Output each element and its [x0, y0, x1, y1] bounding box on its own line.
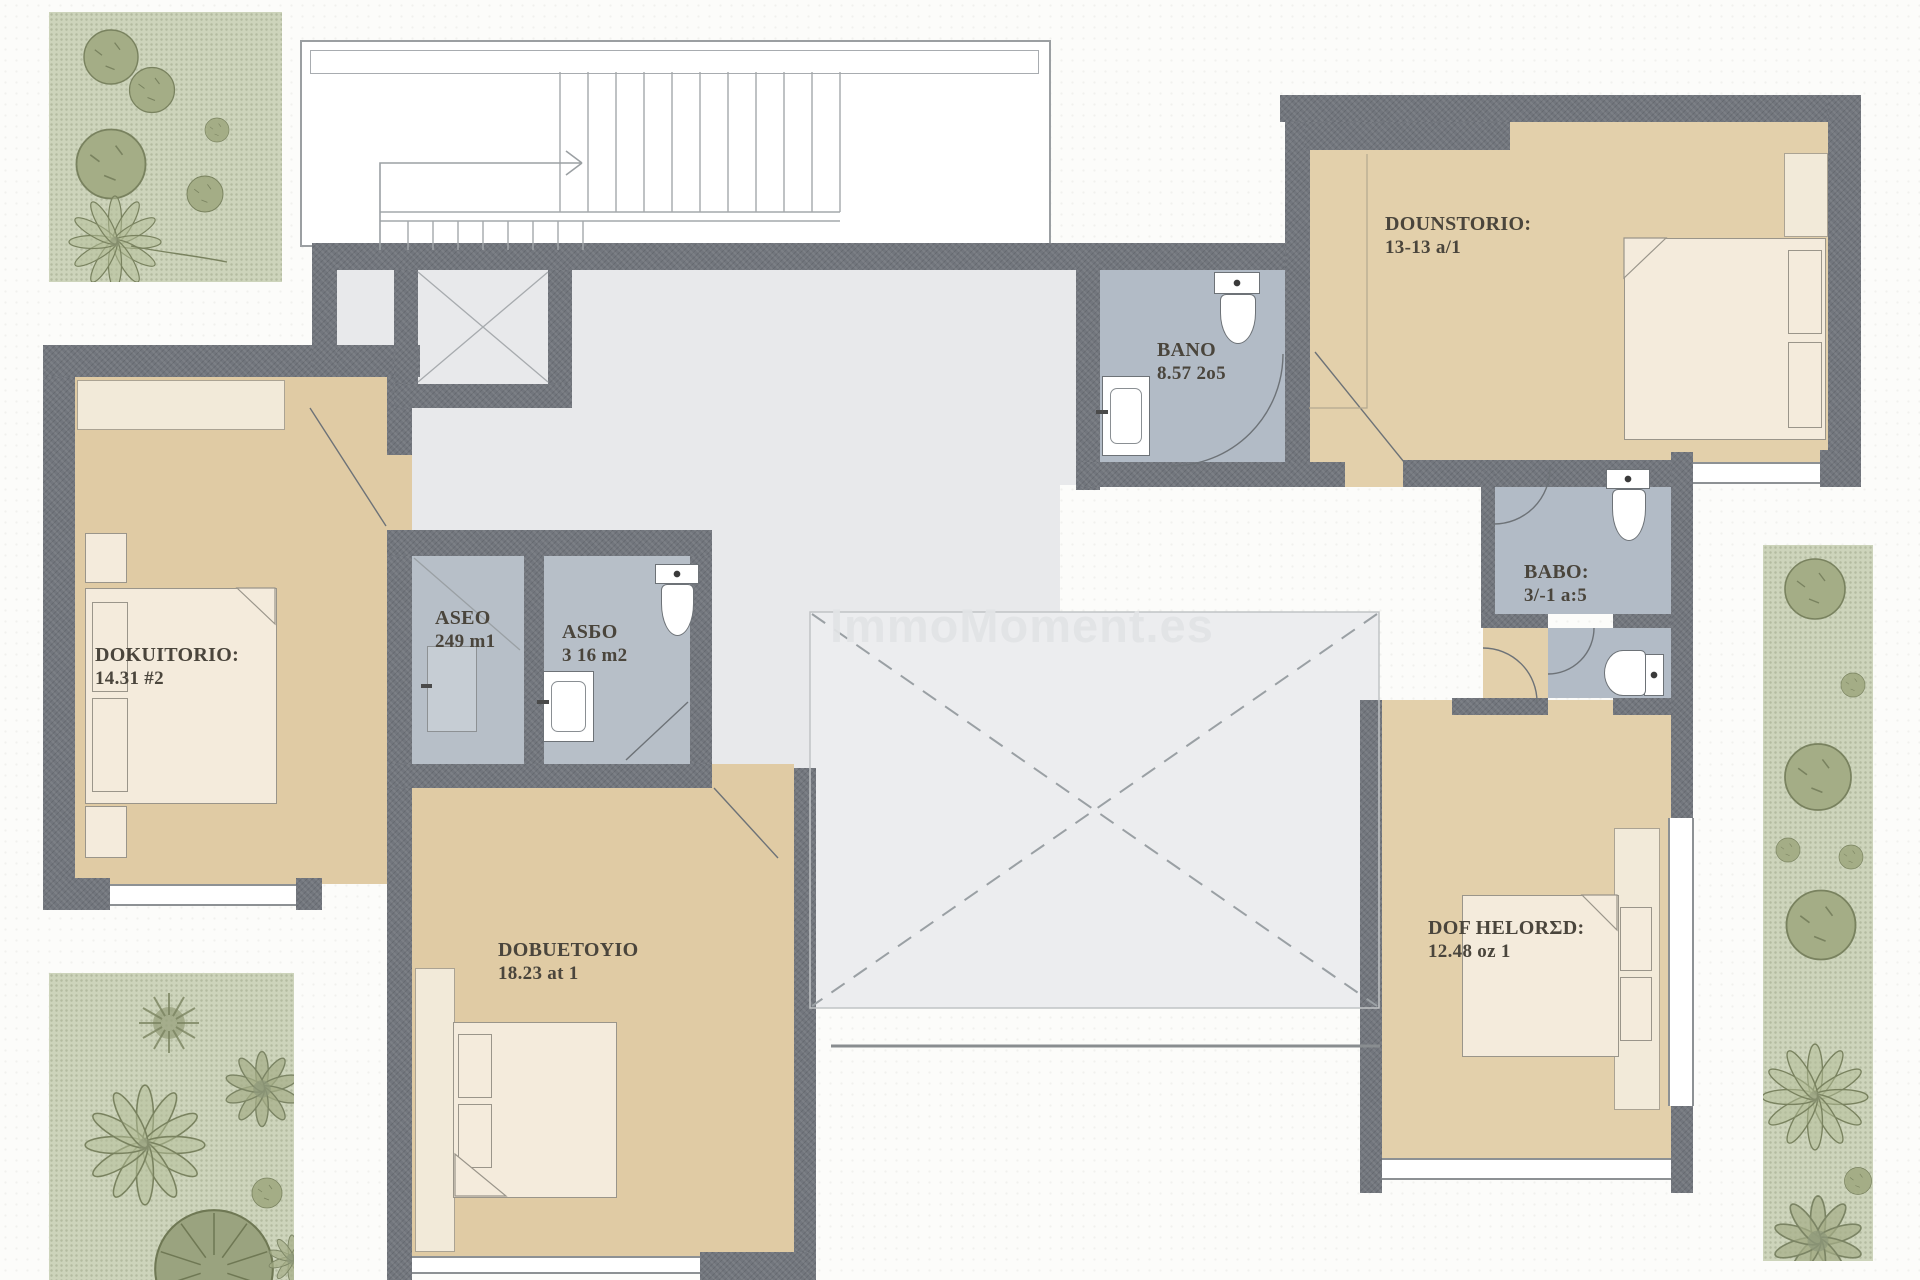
- room-name: BANO: [1157, 338, 1226, 362]
- pillow: [458, 1104, 492, 1168]
- room-label-dobuetoyio: DOBUETOYIO 18.23 at 1: [498, 938, 638, 986]
- hallway-floor: [337, 270, 1076, 485]
- room-label-dof-helored: DOF HELORΣD: 12.48 oz 1: [1428, 916, 1585, 964]
- window: [1382, 1158, 1671, 1180]
- room-label-dounstorio: DOUNSTORIO: 13-13 a/1: [1385, 212, 1531, 260]
- room-area: 3 16 m2: [562, 644, 627, 667]
- toilet-icon: [1644, 654, 1664, 696]
- wardrobe: [77, 380, 285, 430]
- doorway: [1483, 628, 1548, 700]
- doorway: [387, 455, 412, 530]
- pillow: [1620, 907, 1652, 971]
- toilet-icon: [655, 564, 699, 584]
- elevator-wall: [394, 270, 418, 384]
- shower-tray-icon: [427, 646, 477, 732]
- faucet-icon: [421, 684, 432, 688]
- nightstand: [85, 806, 127, 858]
- elevator-wall: [548, 270, 572, 384]
- wall: [1452, 698, 1548, 715]
- toilet-icon: [1606, 469, 1650, 489]
- wall: [387, 764, 712, 788]
- toilet-icon: [1604, 650, 1646, 696]
- sink-icon: [551, 681, 586, 732]
- wall: [1613, 698, 1671, 715]
- room-name: ASБO: [562, 620, 627, 644]
- garden-top-left: [49, 12, 282, 282]
- hallway-floor: [700, 612, 810, 788]
- floor-plan: DOUNSTORIO: 13-13 a/1 BANO 8.57 2o5 BABO…: [0, 0, 1920, 1280]
- wall: [1828, 95, 1861, 468]
- wall: [1360, 700, 1382, 1193]
- room-name: BABO:: [1524, 560, 1589, 584]
- room-name: DOBUETOYIO: [498, 938, 638, 962]
- doorway: [1345, 462, 1403, 487]
- wall: [1820, 450, 1861, 487]
- pillow: [1788, 342, 1822, 428]
- faucet-icon: [537, 700, 549, 704]
- wall: [794, 768, 816, 1256]
- wall: [1076, 243, 1100, 490]
- window: [412, 1256, 700, 1274]
- wall: [524, 556, 544, 764]
- room-name: DOF HELORΣD:: [1428, 916, 1585, 940]
- room-area: 14.31 #2: [95, 667, 239, 690]
- wall: [1285, 122, 1310, 470]
- room-label-aseo: ASEO 249 m1: [435, 606, 495, 654]
- wall: [1076, 462, 1345, 487]
- garden-right: [1763, 545, 1873, 1261]
- room-area: 13-13 a/1: [1385, 236, 1531, 259]
- pillow: [458, 1034, 492, 1098]
- wall: [43, 345, 75, 910]
- wall: [1481, 470, 1495, 628]
- room-label-bano: BANO 8.57 2o5: [1157, 338, 1226, 386]
- room-area: 8.57 2o5: [1157, 362, 1226, 385]
- window: [1668, 818, 1694, 1106]
- stair-landing: [310, 50, 1039, 74]
- wall: [700, 1252, 816, 1280]
- wall: [43, 878, 110, 910]
- window: [110, 884, 296, 906]
- window: [1693, 462, 1820, 484]
- wall: [1671, 1106, 1693, 1193]
- plants-illustration: [49, 12, 282, 282]
- room-area: 3/-1 a:5: [1524, 584, 1589, 607]
- pillow: [92, 698, 128, 792]
- wall: [296, 878, 322, 910]
- elevator-wall: [394, 384, 572, 408]
- wall: [1671, 452, 1693, 818]
- room-name: DOUNSTORIO:: [1385, 212, 1531, 236]
- pillow: [1620, 977, 1652, 1041]
- doorway: [712, 764, 794, 788]
- wardrobe: [1784, 153, 1828, 237]
- wall: [1280, 95, 1861, 122]
- sink-icon: [1110, 388, 1142, 444]
- nightstand: [85, 533, 127, 583]
- wall: [43, 345, 420, 377]
- room-area: 249 m1: [435, 630, 495, 653]
- toilet-icon: [1214, 272, 1260, 294]
- wall: [1305, 122, 1510, 150]
- wardrobe: [415, 968, 455, 1252]
- room-name: DOKUITORIO:: [95, 643, 239, 667]
- room-label-dokuitorio: DOKUITORIO: 14.31 #2: [95, 643, 239, 691]
- room-label-asbo: ASБO 3 16 m2: [562, 620, 627, 668]
- plants-illustration: [49, 973, 294, 1280]
- room-name: ASEO: [435, 606, 495, 630]
- double-height-void: [810, 612, 1379, 1008]
- wall: [1613, 614, 1671, 628]
- garden-bottom-left: [49, 973, 294, 1280]
- room-area: 12.48 oz 1: [1428, 940, 1585, 963]
- wall: [387, 530, 712, 556]
- room-area: 18.23 at 1: [498, 962, 638, 985]
- wall: [1481, 614, 1548, 628]
- faucet-icon: [1096, 410, 1108, 414]
- wall: [312, 243, 1310, 270]
- watermark: ImmoMoment.es: [830, 598, 1214, 653]
- room-label-babo: BABO: 3/-1 a:5: [1524, 560, 1589, 608]
- pillow: [1788, 250, 1822, 334]
- wall: [387, 530, 412, 1280]
- wall: [312, 243, 337, 377]
- plants-illustration: [1763, 545, 1873, 1261]
